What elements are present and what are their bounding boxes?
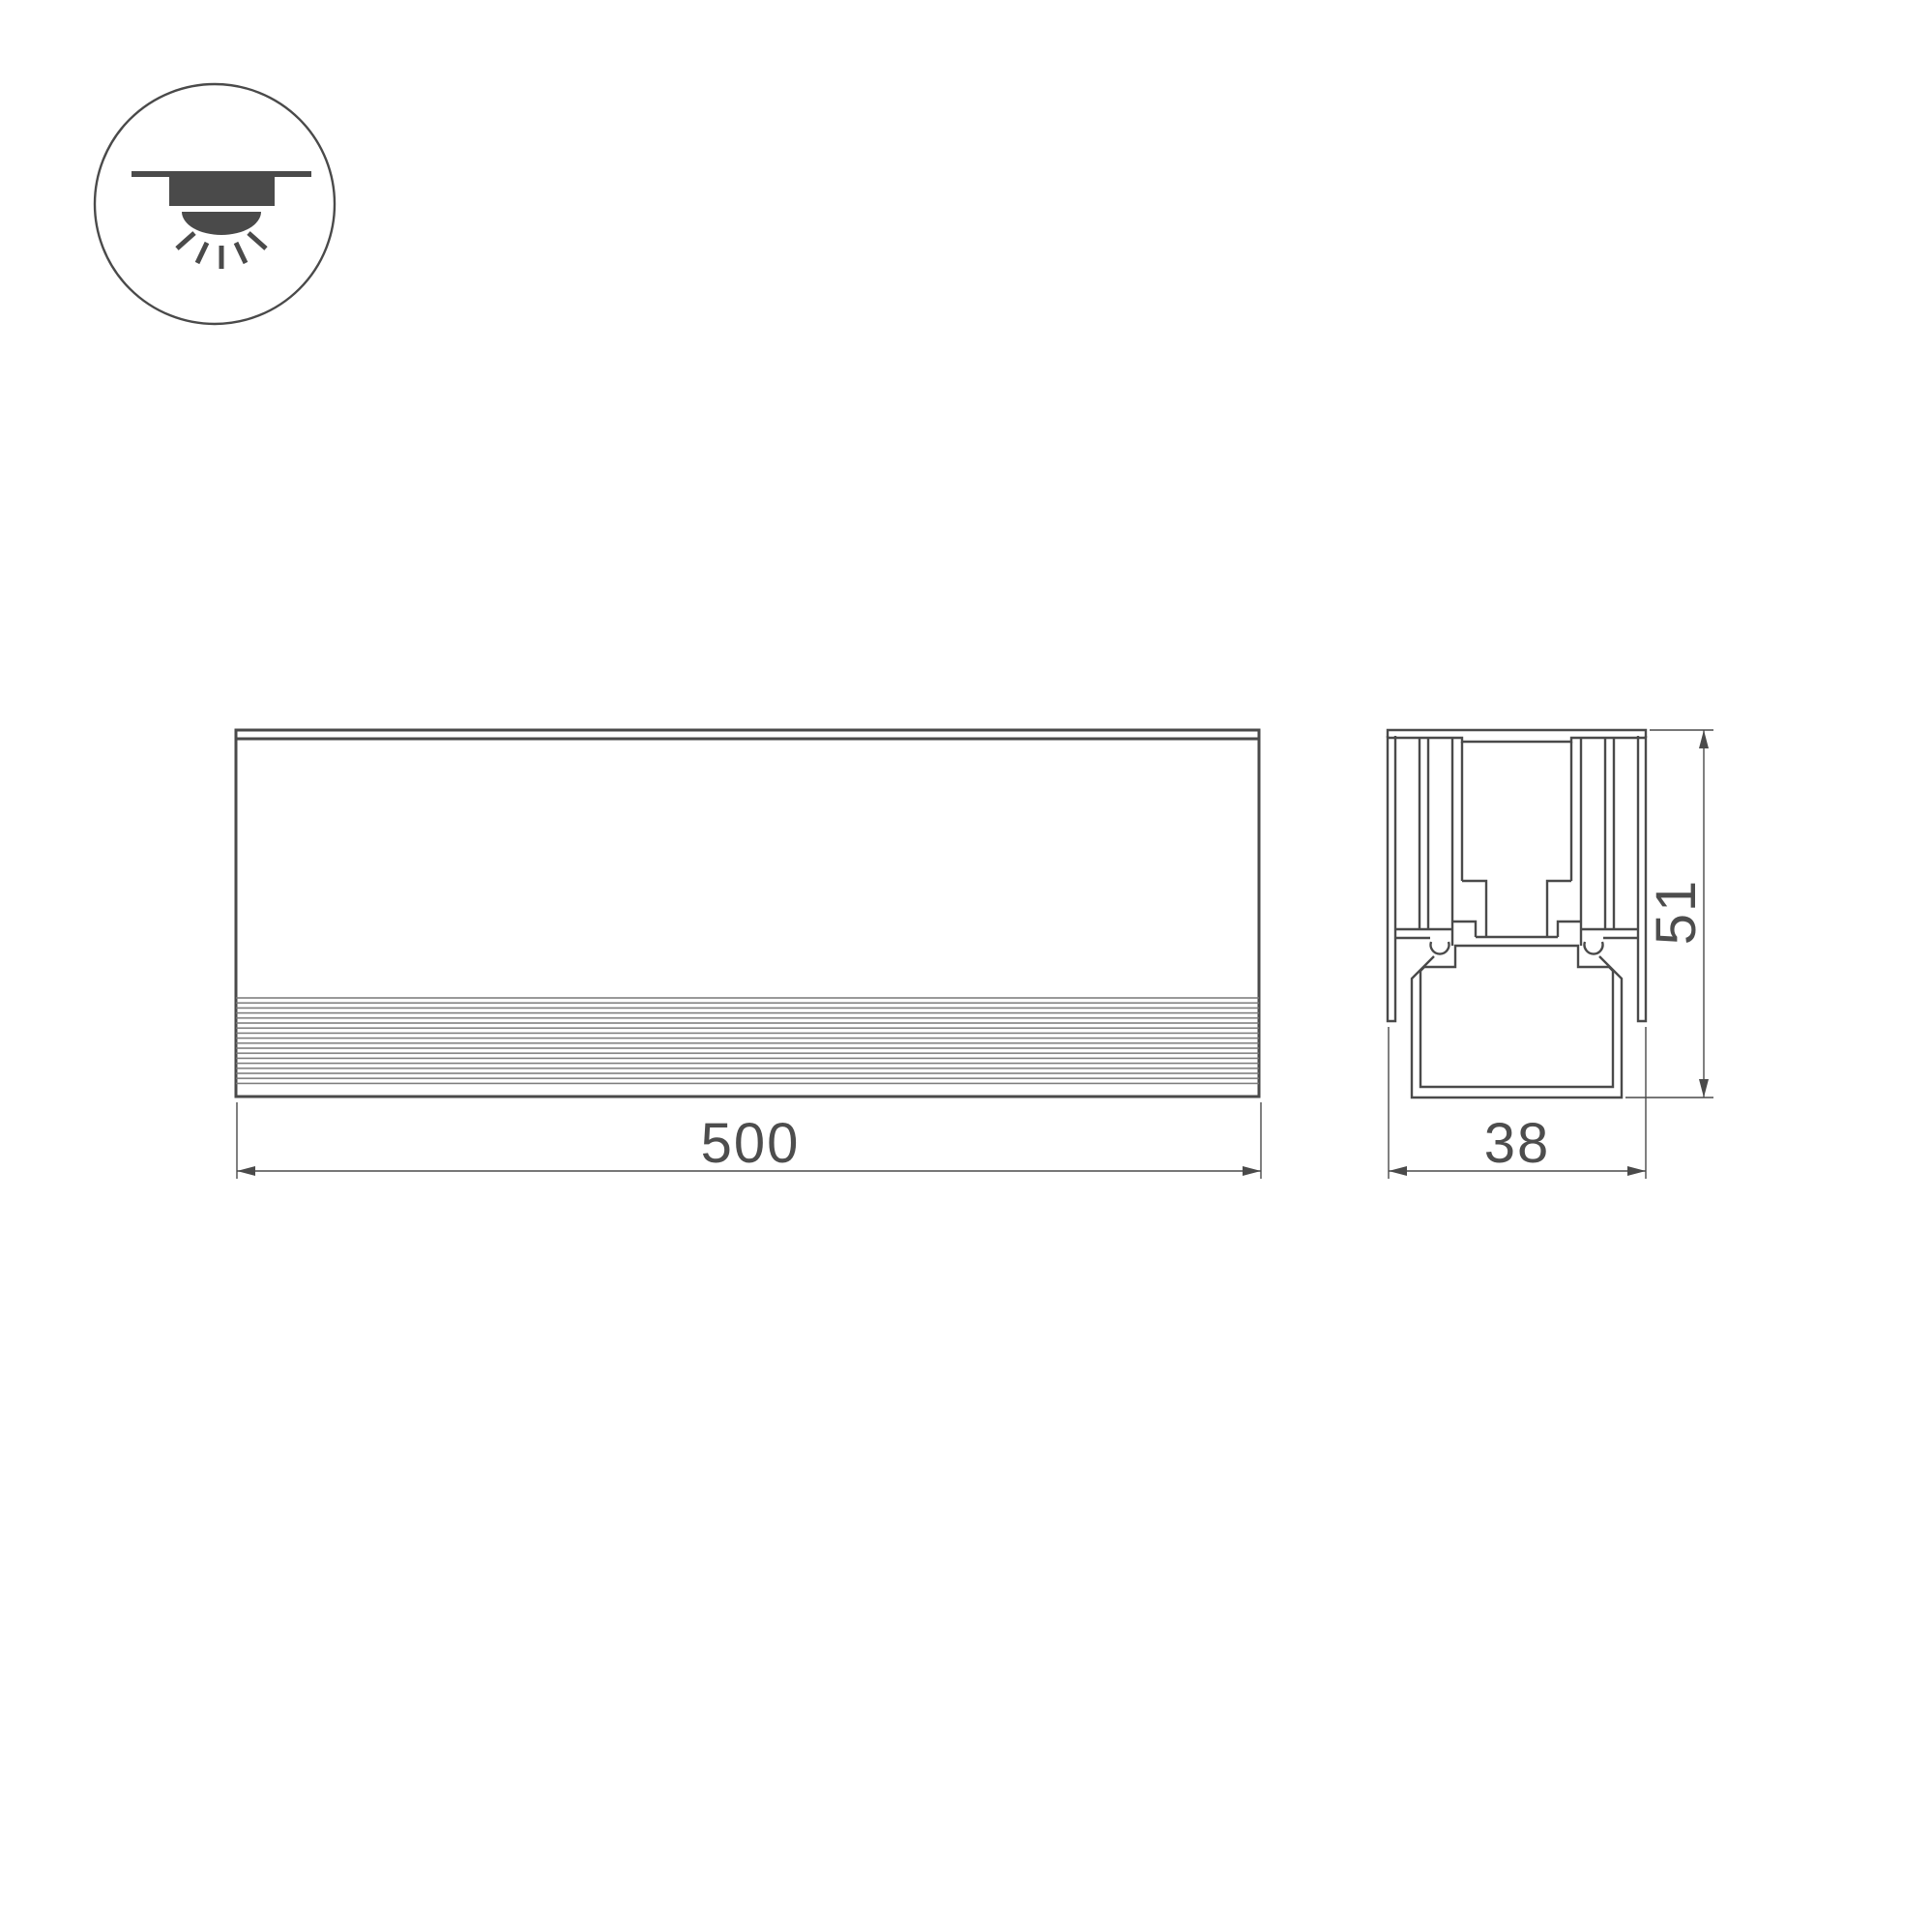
height-arrow-bottom <box>1699 1079 1709 1098</box>
section-mid-wall-right <box>1605 738 1614 929</box>
section-ledge-left <box>1395 929 1452 938</box>
section-cavity-wall-left <box>1452 738 1462 946</box>
section-mid-wall-left <box>1420 738 1428 929</box>
length-dimension-label: 500 <box>701 1112 801 1175</box>
icon-light-rays <box>177 233 266 269</box>
section-box-inner <box>1420 971 1613 1087</box>
technical-dimension-drawing: 500 38 51 <box>0 0 1932 1932</box>
front-ribbed-diffuser <box>236 997 1259 1087</box>
height-arrow-top <box>1699 730 1709 748</box>
height-dimension-label: 51 <box>1645 879 1708 946</box>
length-arrow-left <box>237 1166 255 1176</box>
section-box-outer <box>1412 956 1622 1098</box>
width-dimension: 38 <box>1389 1027 1646 1179</box>
front-view <box>236 730 1259 1097</box>
section-cap-bottom <box>1388 738 1646 742</box>
section-view <box>1388 730 1646 1098</box>
section-foot-left <box>1452 922 1476 937</box>
icon-lamp-dome <box>182 212 261 235</box>
section-box-ceiling <box>1420 946 1613 971</box>
section-cavity-floor <box>1462 881 1571 937</box>
section-ledge-right <box>1581 929 1638 938</box>
icon-recessed-housing <box>169 176 275 206</box>
section-cavity-wall-right <box>1571 738 1581 946</box>
width-arrow-right <box>1627 1166 1646 1176</box>
section-screw-notch-left <box>1431 942 1449 954</box>
section-screw-notch-right <box>1585 942 1603 954</box>
length-dimension: 500 <box>237 1102 1261 1179</box>
section-foot-right <box>1558 922 1581 937</box>
section-outer-wall-left <box>1388 736 1395 1021</box>
width-dimension-label: 38 <box>1484 1112 1551 1175</box>
section-outer-wall-right <box>1638 736 1646 1021</box>
width-arrow-left <box>1389 1166 1407 1176</box>
recessed-downlight-icon <box>95 84 335 324</box>
length-arrow-right <box>1243 1166 1261 1176</box>
